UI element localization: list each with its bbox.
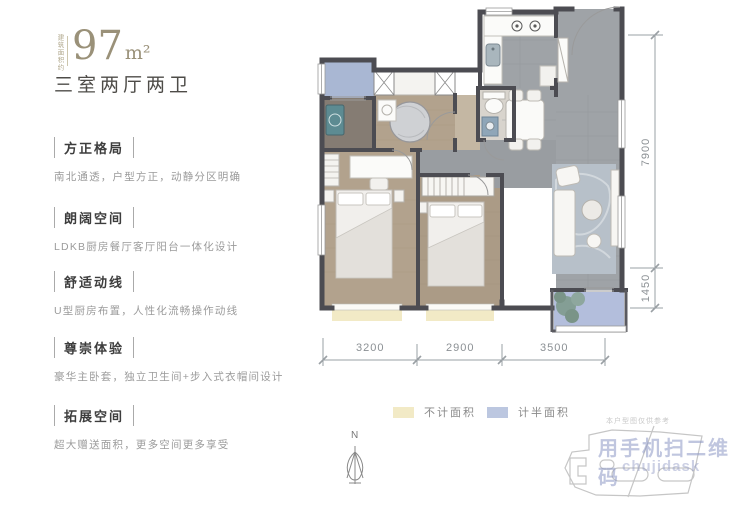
layout-type: 三室两厅两卫 <box>54 70 192 97</box>
legend-label: 计半面积 <box>518 404 570 420</box>
bedroom1-sill <box>332 304 402 310</box>
legend-swatch-yellow <box>393 407 414 418</box>
legend-label: 不计面积 <box>424 404 476 420</box>
area-prefix: 建筑面积约 <box>54 34 64 72</box>
dining-table <box>506 100 544 140</box>
fridge <box>540 66 556 86</box>
feature-bonus-space: 拓展空间 超大赠送面积，更多空间更多享受 <box>54 405 284 452</box>
kitchen-sink <box>486 44 500 66</box>
bedroom1-bay <box>332 310 402 321</box>
feature-title: 尊崇体验 <box>54 337 134 358</box>
area-value: 97 <box>72 26 123 66</box>
legend-half-area: 计半面积 <box>487 404 570 420</box>
equipment-balcony <box>322 60 374 98</box>
pillow <box>366 193 390 205</box>
pillow <box>338 193 363 205</box>
sofa <box>554 190 575 256</box>
north-label: N <box>351 430 358 441</box>
feature-desc: LDKB厨房餐厅客厅阳台一体化设计 <box>54 239 284 254</box>
feature-premium-suite: 尊崇体验 豪华主卧套，独立卫生间+步入式衣帽间设计 <box>54 337 284 384</box>
bedroom2-bay <box>426 310 494 321</box>
feature-desc: 南北通透，户型方正，动静分区明确 <box>54 169 284 184</box>
pillow <box>430 205 455 217</box>
dim-right-1450: 1450 <box>640 274 652 302</box>
bedroom2-sill <box>426 304 494 310</box>
dining-chair <box>527 90 541 101</box>
feature-title: 拓展空间 <box>54 405 134 426</box>
area-row: 建筑面积约 97 m² <box>54 26 151 72</box>
living-room-furniture <box>552 164 619 274</box>
dining-chair <box>527 139 541 150</box>
pillow <box>458 205 482 217</box>
desk-chair <box>370 178 388 190</box>
area-divider <box>67 36 68 66</box>
nightstand <box>324 190 334 202</box>
legend-no-area: 不计面积 <box>393 404 476 420</box>
watermark-caption: 本户型图仅供参考 <box>606 416 670 426</box>
laundry-fixtures <box>326 105 344 135</box>
title-block: 建筑面积约 97 m² <box>54 26 151 72</box>
vanity <box>378 100 396 121</box>
coffee-table <box>582 200 602 220</box>
pouf <box>587 234 601 248</box>
dim-right-7900: 7900 <box>640 138 652 166</box>
kitchen-counter-top <box>484 16 556 36</box>
toilet <box>485 99 503 114</box>
feature-desc: U型厨房布置，人性化流畅操作动线 <box>54 303 284 318</box>
feature-title: 舒适动线 <box>54 271 134 292</box>
faucet <box>492 48 495 51</box>
feature-comfort-flow: 舒适动线 U型厨房布置，人性化流畅操作动线 <box>54 271 284 318</box>
nightstand <box>394 190 404 202</box>
nightstand <box>419 202 427 213</box>
feature-square-layout: 方正格局 南北通透，户型方正，动静分区明确 <box>54 137 284 184</box>
dim-bottom-3200: 3200 <box>356 342 384 354</box>
armchair <box>555 165 580 187</box>
toilet-tank <box>483 92 505 99</box>
feature-title: 朗阔空间 <box>54 207 134 228</box>
feature-desc: 超大赠送面积，更多空间更多享受 <box>54 437 284 452</box>
closet-strip <box>374 70 455 95</box>
dim-bottom-3500: 3500 <box>540 342 568 354</box>
watermark-line2: chujidask <box>622 458 700 475</box>
desk <box>350 156 412 178</box>
bedroom2-furniture <box>419 177 494 286</box>
feature-desc: 豪华主卧套，独立卫生间+步入式衣帽间设计 <box>54 369 284 384</box>
feature-open-space: 朗阔空间 LDKB厨房餐厅客厅阳台一体化设计 <box>54 207 284 254</box>
legend-swatch-blue <box>487 407 508 418</box>
north-compass-icon <box>347 446 363 484</box>
dim-bottom-2900: 2900 <box>446 342 474 354</box>
floorplan-brochure: 建筑面积约 97 m² 三室两厅两卫 方正格局 南北通透，户型方正，动静分区明确… <box>0 0 740 505</box>
feature-title: 方正格局 <box>54 137 134 158</box>
area-unit: m² <box>125 42 151 64</box>
